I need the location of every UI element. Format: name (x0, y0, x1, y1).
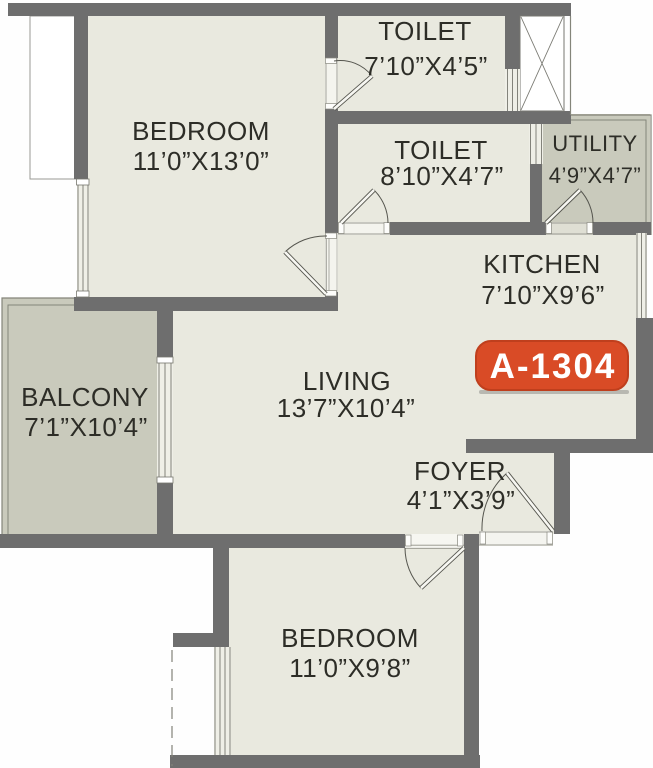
svg-text:7’10”X9’6”: 7’10”X9’6” (481, 280, 605, 310)
svg-text:11’0”X9’8”: 11’0”X9’8” (289, 653, 411, 683)
svg-text:BALCONY: BALCONY (21, 382, 149, 412)
svg-text:13’7”X10’4”: 13’7”X10’4” (277, 393, 415, 423)
svg-text:FOYER: FOYER (414, 456, 506, 486)
svg-text:BEDROOM: BEDROOM (132, 116, 270, 146)
svg-text:4’9”X4’7”: 4’9”X4’7” (549, 163, 642, 188)
svg-text:TOILET: TOILET (378, 16, 472, 46)
svg-text:UTILITY: UTILITY (552, 131, 637, 156)
svg-text:4’1”X3’9”: 4’1”X3’9” (407, 485, 516, 515)
svg-text:7’10”X4’5”: 7’10”X4’5” (364, 51, 488, 81)
svg-text:A-1304: A-1304 (490, 347, 617, 386)
svg-text:8’10”X4’7”: 8’10”X4’7” (380, 161, 504, 191)
svg-text:BEDROOM: BEDROOM (281, 623, 419, 653)
svg-text:LIVING: LIVING (303, 366, 391, 396)
svg-text:7’1”X10’4”: 7’1”X10’4” (24, 412, 148, 442)
svg-text:11’0”X13’0”: 11’0”X13’0” (133, 146, 270, 176)
svg-text:KITCHEN: KITCHEN (483, 249, 601, 279)
